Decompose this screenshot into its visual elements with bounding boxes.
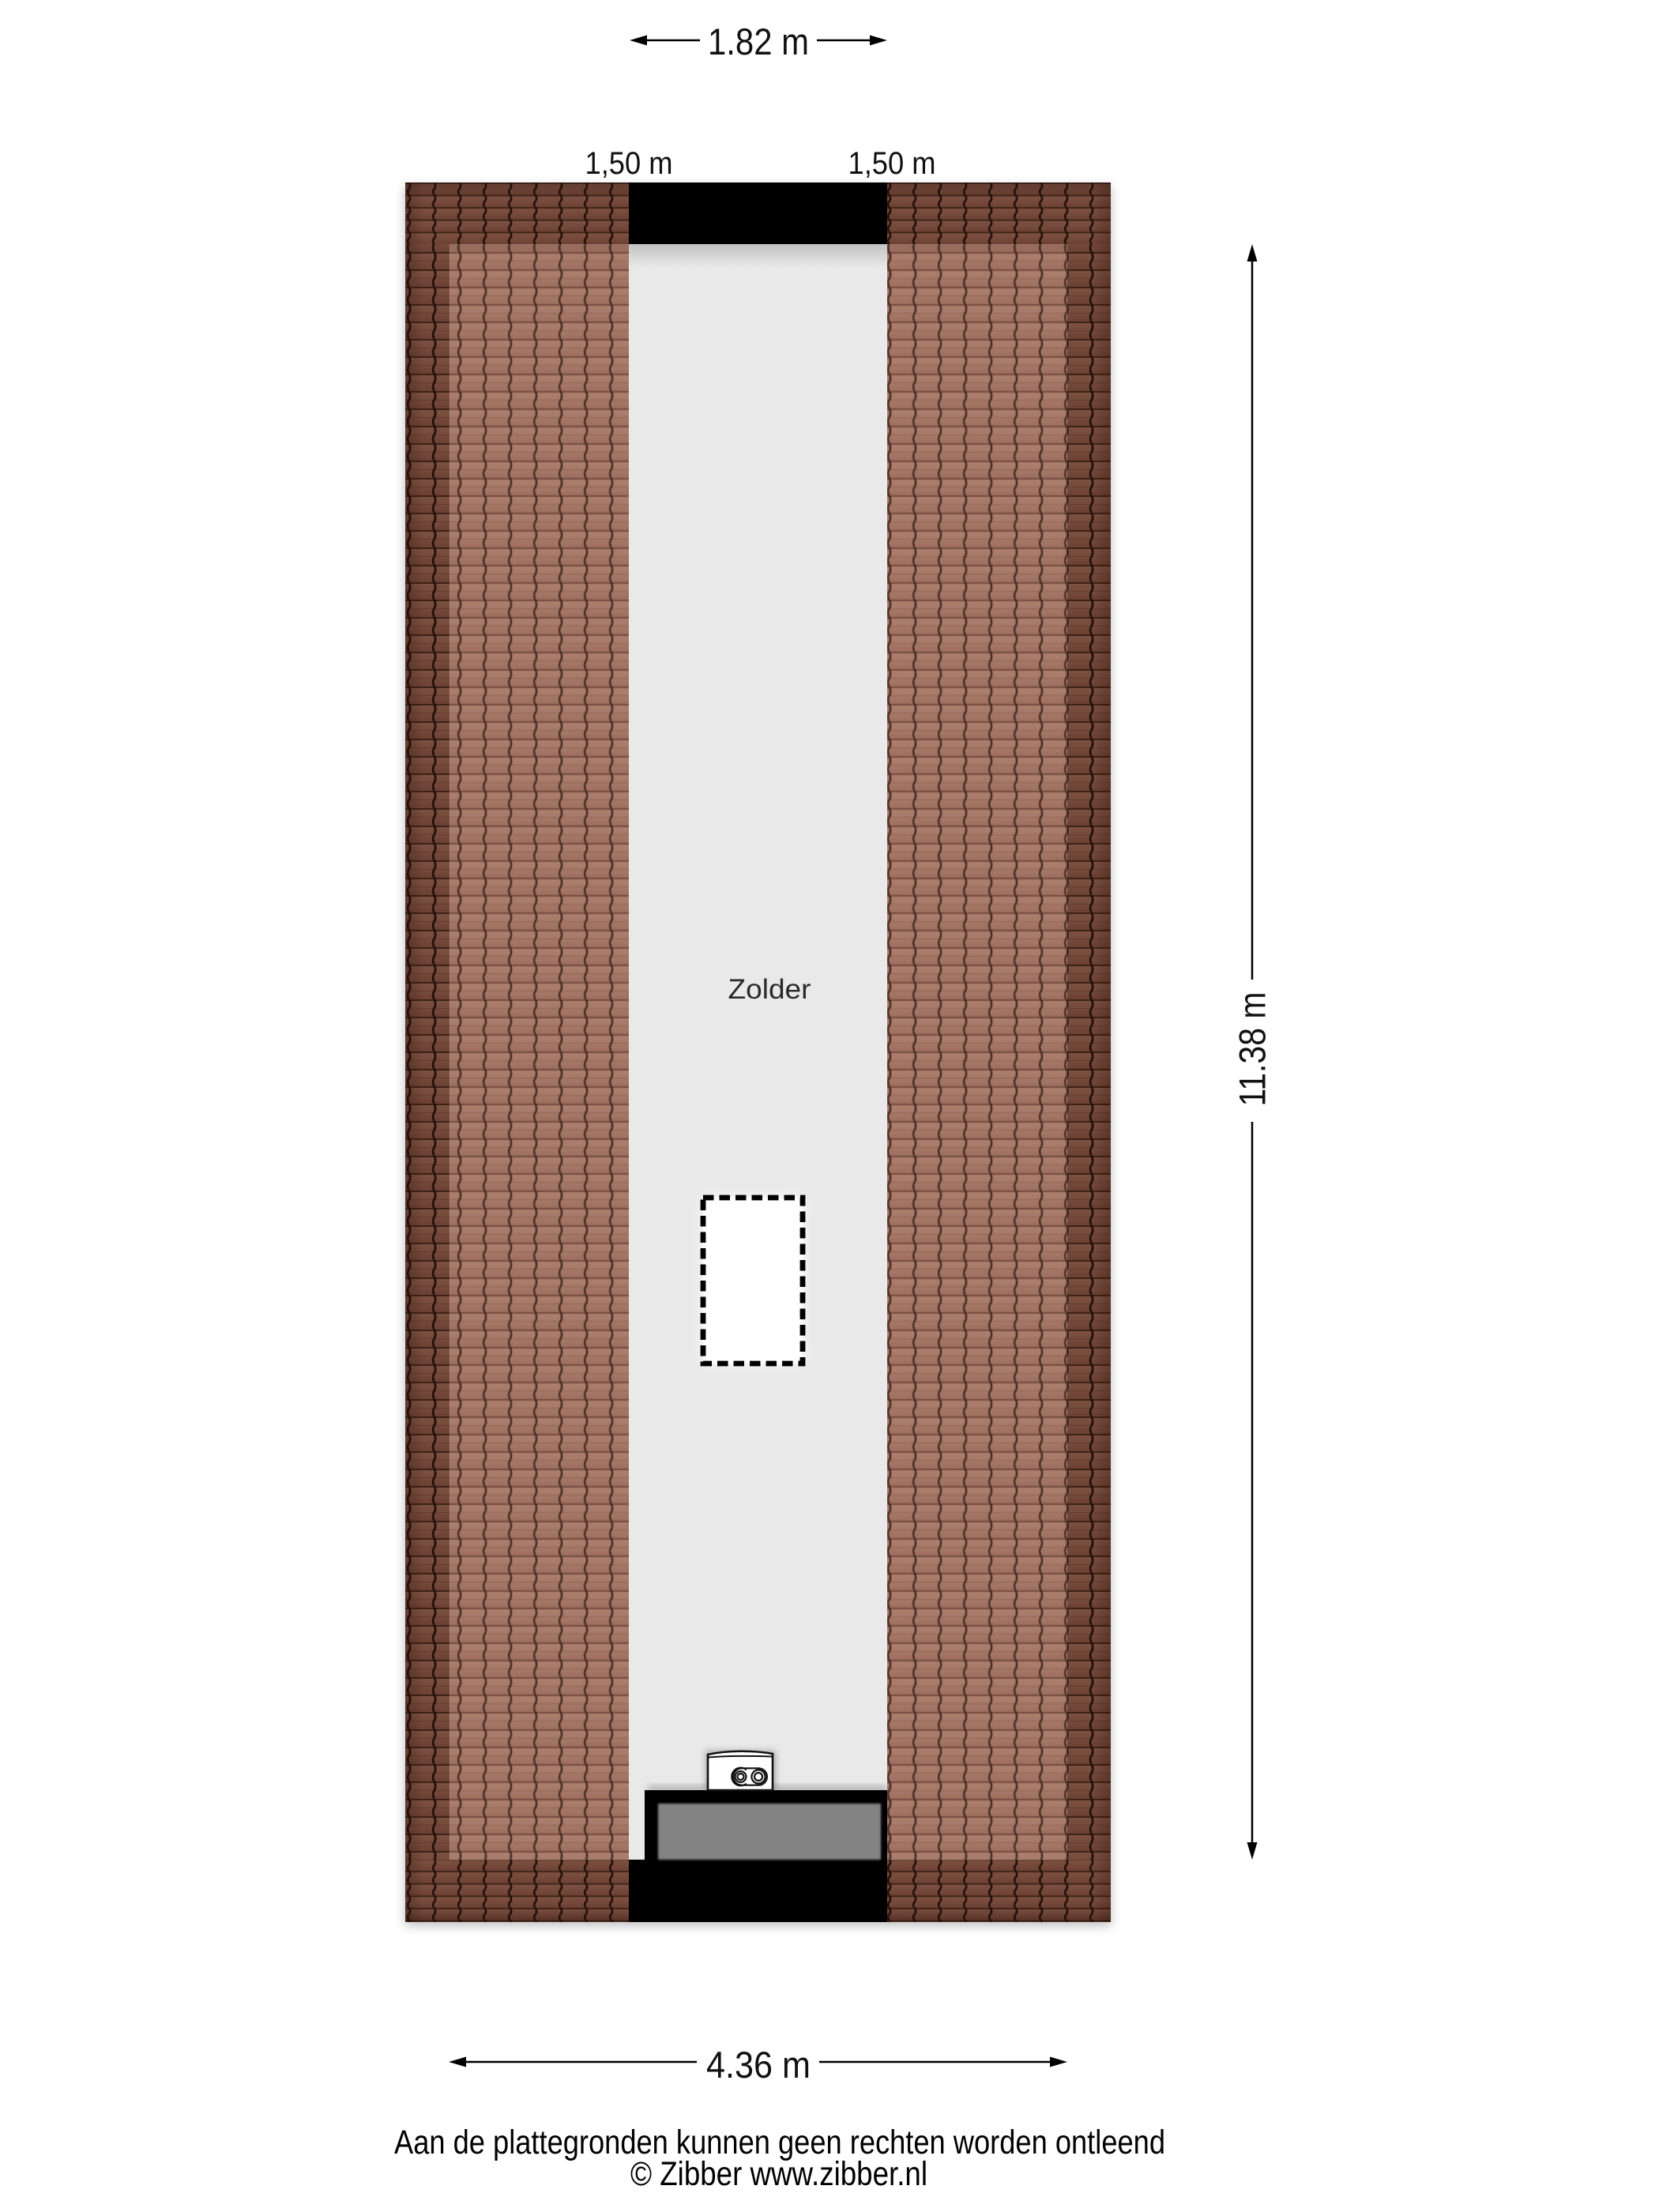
- svg-text:© Zibber www.zibber.nl: © Zibber www.zibber.nl: [630, 2155, 927, 2193]
- svg-text:1.82 m: 1.82 m: [708, 21, 809, 62]
- svg-text:1,50 m: 1,50 m: [585, 146, 673, 181]
- svg-text:1,50 m: 1,50 m: [848, 146, 936, 181]
- svg-text:Zolder: Zolder: [728, 974, 811, 1005]
- svg-text:11.38 m: 11.38 m: [1232, 992, 1273, 1107]
- svg-text:4.36 m: 4.36 m: [706, 2044, 811, 2086]
